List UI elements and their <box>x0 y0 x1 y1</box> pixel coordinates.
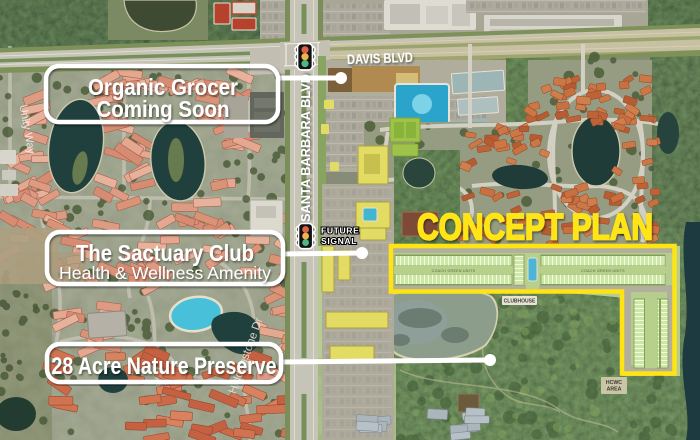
svg-text:Coming Soon: Coming Soon <box>97 96 230 122</box>
svg-text:FUTURE: FUTURE <box>321 226 359 236</box>
svg-text:CONCEPT PLAN: CONCEPT PLAN <box>417 207 653 248</box>
svg-text:DAVIS BLVD: DAVIS BLVD <box>347 50 414 67</box>
svg-text:SIGNAL: SIGNAL <box>321 236 357 246</box>
svg-text:COACH GREEN UNITS: COACH GREEN UNITS <box>581 269 625 273</box>
svg-text:COACH GREEN UNITS: COACH GREEN UNITS <box>432 269 476 273</box>
svg-text:HCWC: HCWC <box>606 380 622 386</box>
svg-text:28 Acre Nature Preserve: 28 Acre Nature Preserve <box>52 353 277 380</box>
svg-text:AREA: AREA <box>607 387 622 393</box>
svg-text:SANTA BARBARA BLVD: SANTA BARBARA BLVD <box>298 74 313 222</box>
svg-text:CLUBHOUSE: CLUBHOUSE <box>504 299 536 305</box>
svg-text:Health & Wellness Amenity: Health & Wellness Amenity <box>59 263 271 283</box>
